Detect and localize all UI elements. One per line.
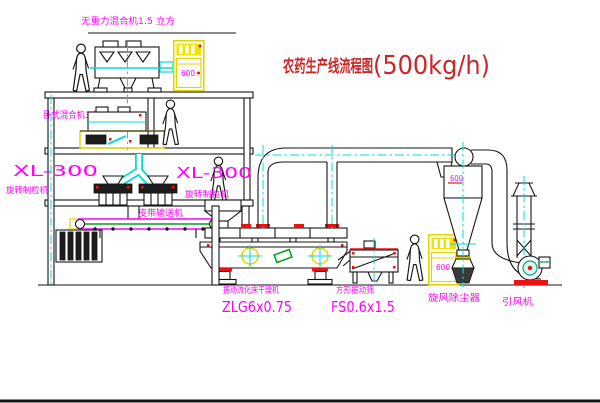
- flow-diagram-canvas: 卧式混合机3立方 600: [0, 0, 600, 403]
- granulator-right-model: XL-300: [176, 164, 252, 182]
- control-cabinet-icon: [174, 41, 204, 91]
- granulator-right-name: 旋转制粒机: [185, 189, 230, 200]
- sieve-name-label: 方形振动筛: [336, 285, 374, 296]
- cyclone-name-label: 旋风除尘器: [428, 292, 481, 304]
- drawing-title: 农药生产线流程图 (500kg/h): [282, 51, 490, 81]
- dryer-name-label: 振动流化床干燥机: [223, 285, 279, 296]
- control-cabinet-top: 600: [174, 41, 204, 91]
- cabinet-bottom-marking: 600: [436, 263, 450, 272]
- control-cabinet-bottom: 600: [429, 235, 459, 285]
- belt-conveyor-label: 皮带输送机: [138, 207, 183, 219]
- title-text: 农药生产线流程图: [282, 56, 373, 77]
- top-mixer-label: 无重力混合机1.5 立方: [81, 15, 175, 27]
- dryer-model-label: ZLG6x0.75: [222, 298, 292, 316]
- sieve-model-label: FS0.6x1.5: [331, 298, 395, 316]
- fan-name-label: 引风机: [502, 296, 534, 308]
- process-flow-drawing: 卧式混合机3立方 600: [0, 0, 600, 403]
- overhead-duct: [255, 145, 458, 232]
- support-stair-block: [56, 230, 102, 262]
- title-capacity: (500kg/h): [373, 51, 490, 81]
- front-column: [212, 206, 219, 285]
- induced-draft-fan: [514, 256, 550, 285]
- person-figure: [73, 44, 89, 91]
- fluid-bed-dryer: [200, 224, 347, 284]
- cyclone-marking: 600: [450, 174, 463, 183]
- granulator-left-model: XL-300: [13, 162, 98, 180]
- person-figure: [163, 100, 179, 145]
- granulator-left-name: 旋转制粒机: [6, 185, 48, 196]
- control-cabinet-icon: [429, 235, 459, 285]
- person-figure: [407, 235, 423, 280]
- cabinet-top-marking: 600: [181, 69, 195, 78]
